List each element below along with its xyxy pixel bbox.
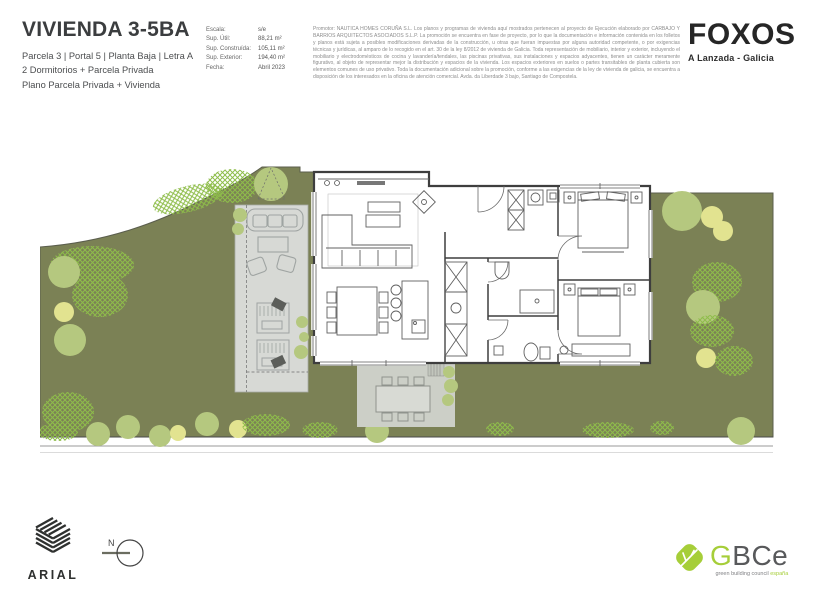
spec-label: Sup. Construída:	[206, 45, 258, 54]
house-floorplan	[311, 172, 653, 366]
spec-row-escala: Escala: s/e	[206, 26, 306, 35]
certification-leaf-icon	[672, 542, 706, 574]
title-block: VIVIENDA 3-5BA Parcela 3 | Portal 5 | Pl…	[22, 18, 212, 92]
spec-label: Fecha:	[206, 64, 258, 73]
certification-tagline: green building council españa	[710, 571, 788, 577]
deck-tree	[206, 167, 288, 203]
studio-logo-name: ARIAL	[26, 568, 80, 582]
page-title: VIVIENDA 3-5BA	[22, 18, 212, 42]
spec-value: Abril 2023	[258, 64, 306, 73]
studio-logo: ARIAL	[26, 514, 80, 582]
spec-label: Escala:	[206, 26, 258, 35]
spec-value: 88,21 m²	[258, 35, 306, 44]
spec-row-sup-construida: Sup. Construída: 105,11 m²	[206, 45, 306, 54]
developer-logo-name: FOXOS	[688, 20, 798, 50]
plan-sheet: VIVIENDA 3-5BA Parcela 3 | Portal 5 | Pl…	[0, 0, 817, 599]
developer-logo: FOXOS A Lanzada - Galicia	[688, 20, 798, 63]
rear-patio	[357, 363, 458, 427]
doormat	[357, 181, 385, 185]
compass-north-label: N	[108, 538, 115, 548]
spec-row-fecha: Fecha: Abril 2023	[206, 64, 306, 73]
developer-logo-location: A Lanzada - Galicia	[688, 53, 798, 63]
patio-steps	[428, 363, 444, 376]
certification-logo: GBCe green building council españa	[672, 542, 788, 577]
legal-disclaimer: Promotor: NAUTICA HOMES CORUÑA S.L. Los …	[313, 26, 680, 81]
certification-name: GBCe	[710, 542, 788, 570]
spec-value: s/e	[258, 26, 306, 35]
spec-row-sup-util: Sup. Útil: 88,21 m²	[206, 35, 306, 44]
studio-logo-icon	[29, 514, 77, 560]
spec-row-sup-exterior: Sup. Exterior: 194,40 m²	[206, 54, 306, 63]
spec-value: 194,40 m²	[258, 54, 306, 63]
subtitle-line-1: Parcela 3 | Portal 5 | Planta Baja | Let…	[22, 49, 212, 63]
spec-label: Sup. Útil:	[206, 35, 258, 44]
spec-value: 105,11 m²	[258, 45, 306, 54]
site-plan-drawing	[40, 166, 775, 458]
subtitle-line-3: Plano Parcela Privada + Vivienda	[22, 78, 212, 92]
subtitle-line-2: 2 Dormitorios + Parcela Privada	[22, 63, 212, 77]
north-compass: N	[100, 532, 150, 570]
spec-label: Sup. Exterior:	[206, 54, 258, 63]
spec-table: Escala: s/e Sup. Útil: 88,21 m² Sup. Con…	[206, 26, 306, 73]
